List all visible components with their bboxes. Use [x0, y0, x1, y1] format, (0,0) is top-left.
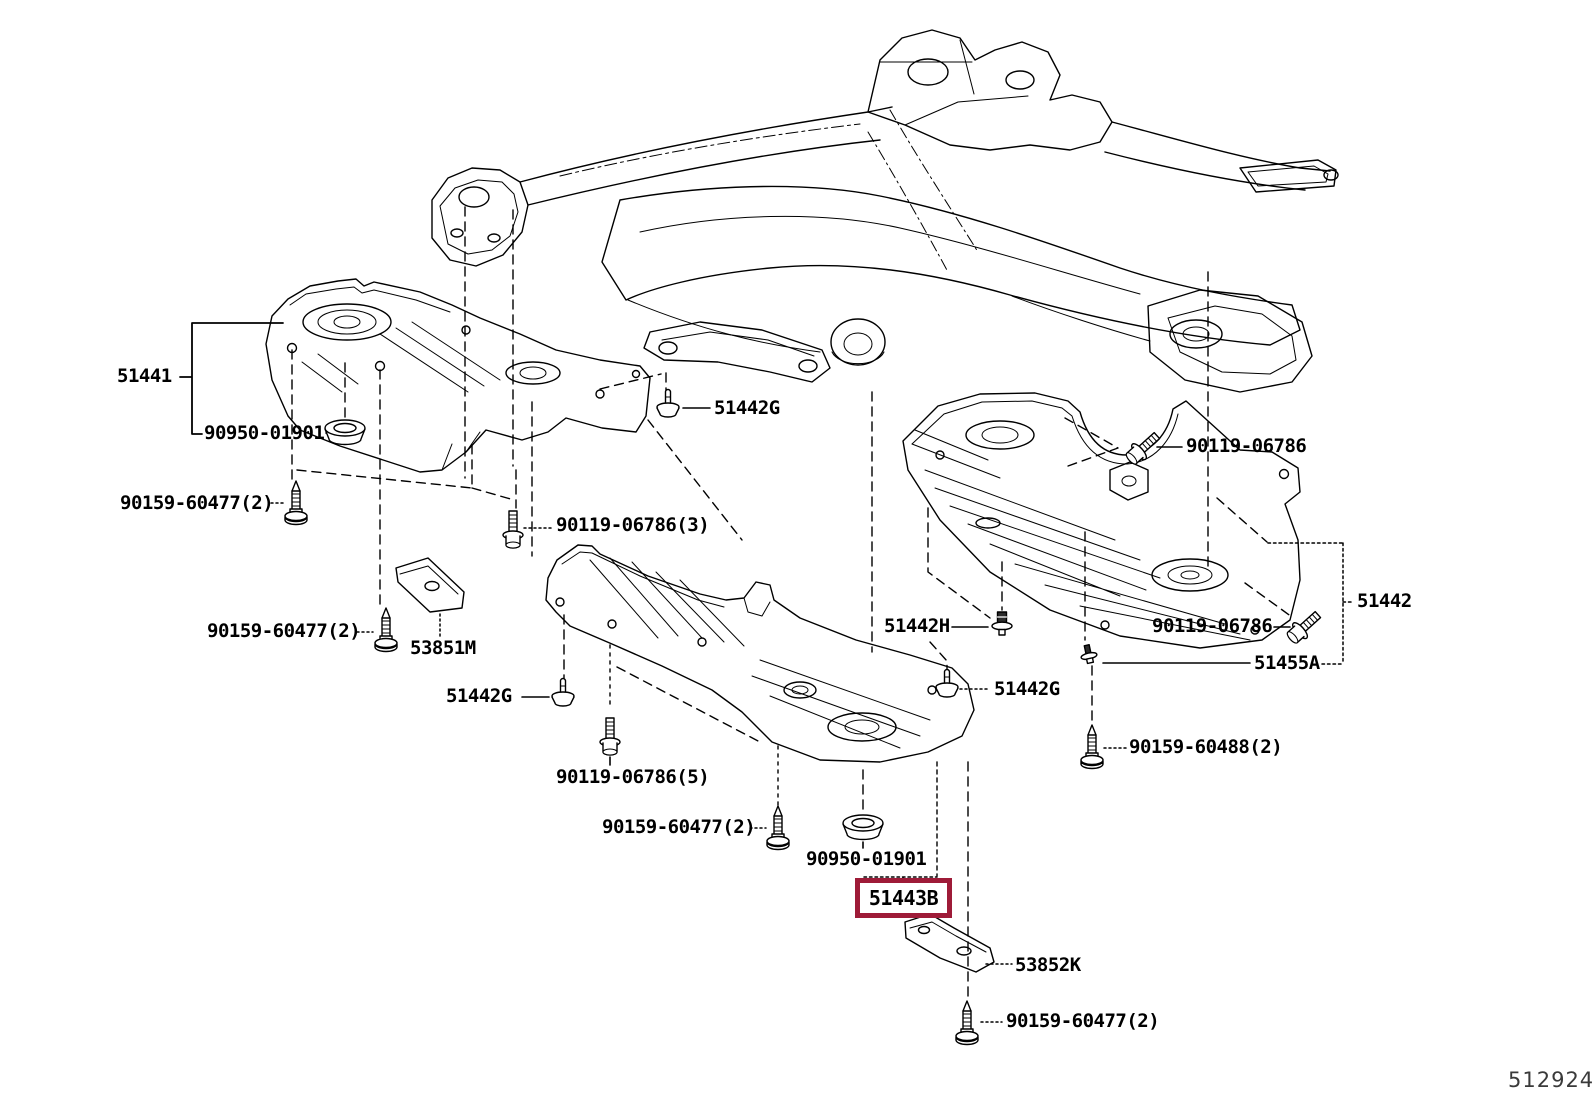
label-screw-stay-lh[interactable]: 90159-60477(2) [207, 622, 360, 641]
screw-icon [285, 481, 307, 525]
diagram-canvas [0, 0, 1592, 1099]
label-clip-upper-center[interactable]: 51442G [714, 399, 780, 418]
label-stay-53852k[interactable]: 53852K [1015, 956, 1081, 975]
under-cover-rh-illustration [903, 393, 1300, 648]
label-stay-53851m[interactable]: 53851M [410, 639, 476, 658]
grommet-icon [325, 420, 365, 445]
clip-icon [657, 390, 679, 418]
label-screw-front-lh[interactable]: 90159-60477(2) [120, 494, 273, 513]
label-screw-bottom[interactable]: 90159-60477(2) [1006, 1012, 1159, 1031]
selected-part-callout[interactable]: 51443B [855, 878, 952, 918]
label-screw-center[interactable]: 90159-60477(2) [602, 818, 755, 837]
label-cover-51441[interactable]: 51441 [117, 367, 172, 386]
stay-53851m-illustration [396, 558, 464, 612]
screw-icon [956, 1001, 978, 1045]
bolt-icon [600, 718, 620, 755]
label-grommet-lower[interactable]: 90950-01901 [806, 850, 926, 869]
bolt-icon [503, 511, 523, 548]
parts-diagram-page: 51441 90950-01901 90159-60477(2) 51442G … [0, 0, 1592, 1099]
label-clip-51455a[interactable]: 51455A [1254, 654, 1320, 673]
label-bolt-center[interactable]: 90119-06786(5) [556, 768, 709, 787]
label-clip-center-rh[interactable]: 51442G [994, 680, 1060, 699]
screw-icon [1081, 725, 1103, 769]
screw-icon [767, 806, 789, 850]
small-clip-icon [1079, 644, 1098, 665]
grommet-icon [843, 815, 883, 840]
label-bolt-rear-rh-lower[interactable]: 90119-06786 [1152, 617, 1272, 636]
pin-clip-icon [992, 612, 1012, 635]
label-grommet-upper[interactable]: 90950-01901 [204, 424, 324, 443]
label-clip-front-lh[interactable]: 51442G [446, 687, 512, 706]
clip-icon [552, 679, 574, 707]
label-clip-51442h[interactable]: 51442H [884, 617, 950, 636]
selected-part-number: 51443B [869, 886, 938, 910]
label-cover-51442[interactable]: 51442 [1357, 592, 1412, 611]
figure-code: 512924 [1508, 1070, 1592, 1091]
label-bolt-rear-rh-upper[interactable]: 90119-06786 [1186, 437, 1306, 456]
crossmember-illustration [432, 30, 1338, 392]
label-screw-rear-rh[interactable]: 90159-60488(2) [1129, 738, 1282, 757]
label-bolt-front-lh[interactable]: 90119-06786(3) [556, 516, 709, 535]
stay-53852k-illustration [905, 914, 994, 972]
screw-icon [375, 608, 397, 652]
